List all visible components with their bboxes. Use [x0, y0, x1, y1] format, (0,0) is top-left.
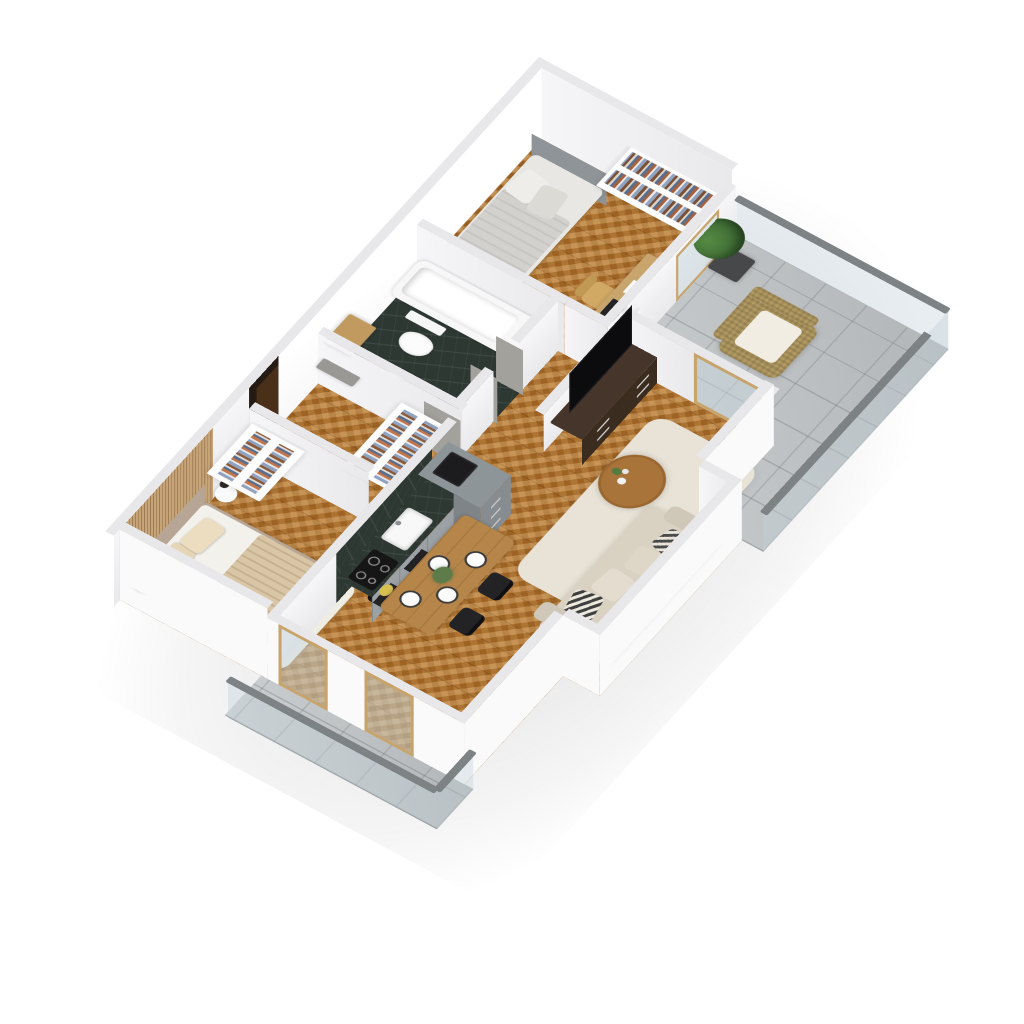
burner — [366, 555, 383, 568]
door-handle-icon — [293, 377, 295, 387]
west-stub — [267, 618, 278, 685]
floor-plan-scene — [0, 0, 1024, 1024]
burner — [354, 570, 369, 581]
shower-fixture-icon — [395, 239, 396, 275]
burner — [378, 564, 392, 574]
burner — [366, 576, 377, 585]
